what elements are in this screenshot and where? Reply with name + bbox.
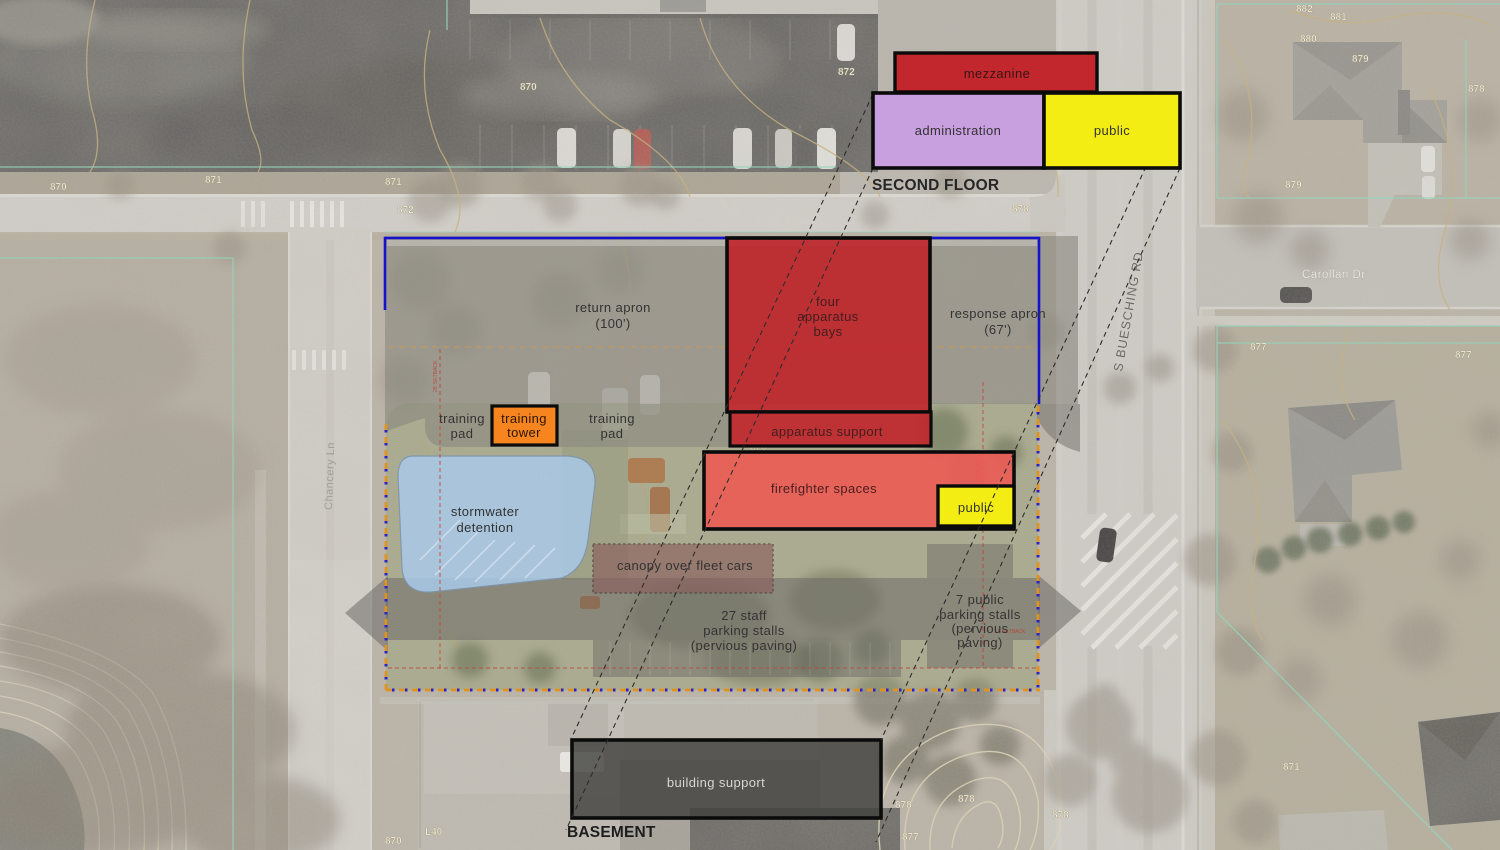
svg-text:training: training bbox=[589, 411, 635, 426]
svg-text:public: public bbox=[958, 500, 994, 515]
svg-text:mezzanine: mezzanine bbox=[964, 66, 1030, 81]
svg-text:25' SETBACK: 25' SETBACK bbox=[433, 360, 439, 392]
svg-text:parking stalls: parking stalls bbox=[939, 607, 1021, 622]
svg-text:canopy over fleet cars: canopy over fleet cars bbox=[617, 558, 753, 573]
svg-text:apparatus support: apparatus support bbox=[771, 424, 883, 439]
svg-text:(67'): (67') bbox=[984, 322, 1012, 337]
svg-text:training: training bbox=[501, 411, 547, 426]
svg-text:training: training bbox=[439, 411, 485, 426]
svg-text:public: public bbox=[1094, 123, 1130, 138]
svg-text:(pervious: (pervious bbox=[951, 621, 1008, 636]
svg-text:pad: pad bbox=[601, 426, 624, 441]
svg-text:BASEMENT: BASEMENT bbox=[567, 824, 656, 841]
svg-text:pad: pad bbox=[451, 426, 474, 441]
svg-text:tower: tower bbox=[507, 425, 541, 440]
svg-text:7 public: 7 public bbox=[956, 592, 1004, 607]
svg-text:apparatus: apparatus bbox=[797, 309, 859, 324]
svg-text:parking stalls: parking stalls bbox=[703, 623, 785, 638]
svg-text:(pervious paving): (pervious paving) bbox=[691, 638, 798, 653]
svg-text:(100'): (100') bbox=[595, 316, 630, 331]
svg-text:paving): paving) bbox=[957, 635, 1002, 650]
svg-text:response apron: response apron bbox=[950, 306, 1046, 321]
svg-text:firefighter spaces: firefighter spaces bbox=[771, 481, 877, 496]
svg-text:SECOND FLOOR: SECOND FLOOR bbox=[872, 177, 999, 194]
svg-text:building support: building support bbox=[667, 775, 765, 790]
svg-text:stormwater: stormwater bbox=[451, 504, 520, 519]
svg-text:four: four bbox=[816, 294, 840, 309]
svg-text:return apron: return apron bbox=[575, 300, 651, 315]
svg-text:detention: detention bbox=[456, 520, 513, 535]
svg-text:administration: administration bbox=[915, 123, 1002, 138]
svg-text:27 staff: 27 staff bbox=[721, 608, 767, 623]
svg-text:bays: bays bbox=[813, 324, 842, 339]
